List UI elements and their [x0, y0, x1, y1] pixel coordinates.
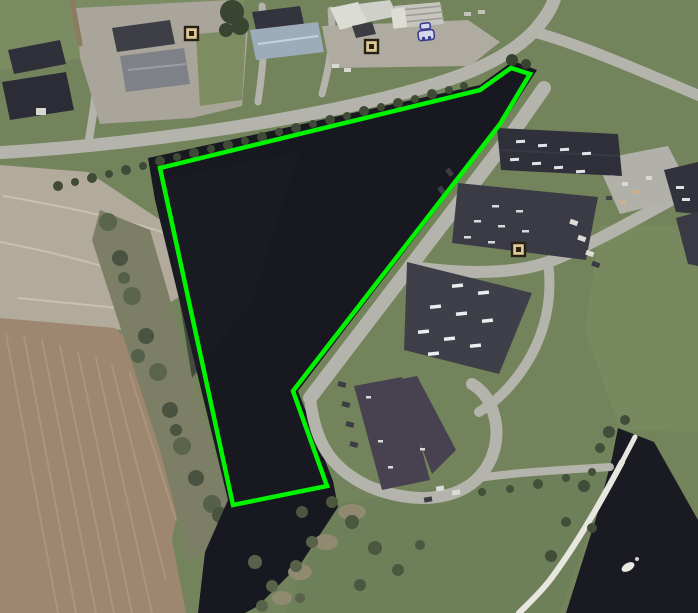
bush: [392, 564, 404, 576]
roadside-tree: [139, 162, 147, 170]
shrub: [173, 437, 191, 455]
tree: [545, 550, 557, 562]
poi-marker-center: [516, 247, 521, 252]
skylight: [576, 170, 585, 173]
shrub: [188, 470, 204, 486]
tree: [533, 479, 543, 489]
roadside-tree: [155, 156, 165, 166]
skylight: [522, 230, 529, 233]
roof-vent: [388, 466, 393, 469]
bush: [295, 593, 305, 603]
tree: [620, 415, 630, 425]
yard-clutter: [620, 200, 626, 204]
bush: [256, 600, 268, 612]
yard-clutter: [622, 182, 628, 186]
skylight: [676, 186, 684, 189]
boat-wake: [635, 557, 639, 561]
bush: [326, 496, 338, 508]
roadside-tree: [343, 112, 351, 120]
roadside-tree: [275, 128, 283, 136]
skylight: [498, 225, 505, 228]
roadside-tree: [411, 95, 419, 103]
tree: [506, 485, 514, 493]
skylight: [582, 152, 591, 155]
tree: [587, 523, 597, 533]
roadside-tree: [189, 148, 199, 158]
shrub: [131, 349, 145, 363]
skylight: [516, 210, 523, 213]
bush: [306, 536, 318, 548]
small-vehicle: [36, 108, 46, 115]
yard-clutter: [606, 196, 612, 200]
shrub: [99, 213, 117, 231]
bush: [248, 555, 262, 569]
skylight: [464, 236, 471, 239]
roadside-tree: [393, 98, 403, 108]
poi-marker-center: [369, 44, 374, 49]
skylight: [538, 144, 547, 147]
roadside-tree: [309, 120, 317, 128]
car: [344, 68, 351, 72]
skylight: [532, 162, 541, 165]
shrub: [170, 424, 182, 436]
yard-clutter: [634, 190, 640, 194]
tree: [478, 488, 486, 496]
bush: [354, 579, 366, 591]
skylight: [560, 148, 569, 151]
tree: [562, 474, 570, 482]
poi-square-marker[interactable]: [512, 243, 525, 256]
skylight: [488, 241, 495, 244]
roof-vent: [378, 440, 383, 443]
bush: [345, 515, 359, 529]
skylight: [510, 158, 519, 161]
bush: [368, 541, 382, 555]
roadside-tree: [291, 123, 301, 133]
skylight: [682, 198, 690, 201]
skylight: [474, 220, 481, 223]
roadside-tree: [460, 82, 468, 90]
bush: [266, 580, 278, 592]
tree: [578, 480, 590, 492]
roadside-tree: [173, 153, 181, 161]
map-canvas[interactable]: [0, 0, 698, 613]
tree: [595, 443, 605, 453]
bush: [290, 560, 302, 572]
shrub: [118, 272, 130, 284]
hedge: [231, 17, 249, 35]
roadside-tree: [105, 170, 113, 178]
basemap-imagery-layer: [0, 0, 698, 613]
car: [464, 12, 471, 16]
tree: [506, 54, 518, 66]
roof-vent: [420, 448, 425, 451]
roadside-tree: [377, 103, 385, 111]
roadside-tree: [121, 165, 131, 175]
poi-marker-center: [189, 31, 194, 36]
shrub: [162, 402, 178, 418]
car: [478, 10, 485, 14]
paddock: [196, 30, 246, 106]
skylight: [554, 166, 563, 169]
tree: [521, 59, 531, 69]
skylight: [492, 205, 499, 208]
poi-square-marker[interactable]: [185, 27, 198, 40]
skylight: [516, 140, 525, 143]
tree: [588, 468, 596, 476]
roadside-tree: [427, 89, 437, 99]
hedge: [219, 23, 233, 37]
shrub: [123, 287, 141, 305]
tree: [603, 426, 615, 438]
vehicle-icon-body: [418, 29, 435, 41]
roadside-tree: [359, 106, 369, 116]
truck: [391, 7, 408, 29]
poi-square-marker[interactable]: [365, 40, 378, 53]
shrub: [138, 328, 154, 344]
roadside-tree: [241, 137, 249, 145]
bush: [296, 506, 308, 518]
roadside-tree: [53, 181, 63, 191]
roadside-tree: [71, 178, 79, 186]
shrub: [149, 363, 167, 381]
river-bank: [272, 591, 292, 605]
map-viewport[interactable]: [0, 0, 698, 613]
shrub: [112, 250, 128, 266]
vehicle-icon-body: [420, 23, 431, 30]
car: [332, 64, 339, 68]
bush: [415, 540, 425, 550]
roadside-tree: [87, 173, 97, 183]
roadside-tree: [207, 145, 215, 153]
tree: [561, 517, 571, 527]
roadside-tree: [445, 86, 453, 94]
roof-vent: [366, 396, 371, 399]
yard-clutter: [646, 176, 652, 180]
